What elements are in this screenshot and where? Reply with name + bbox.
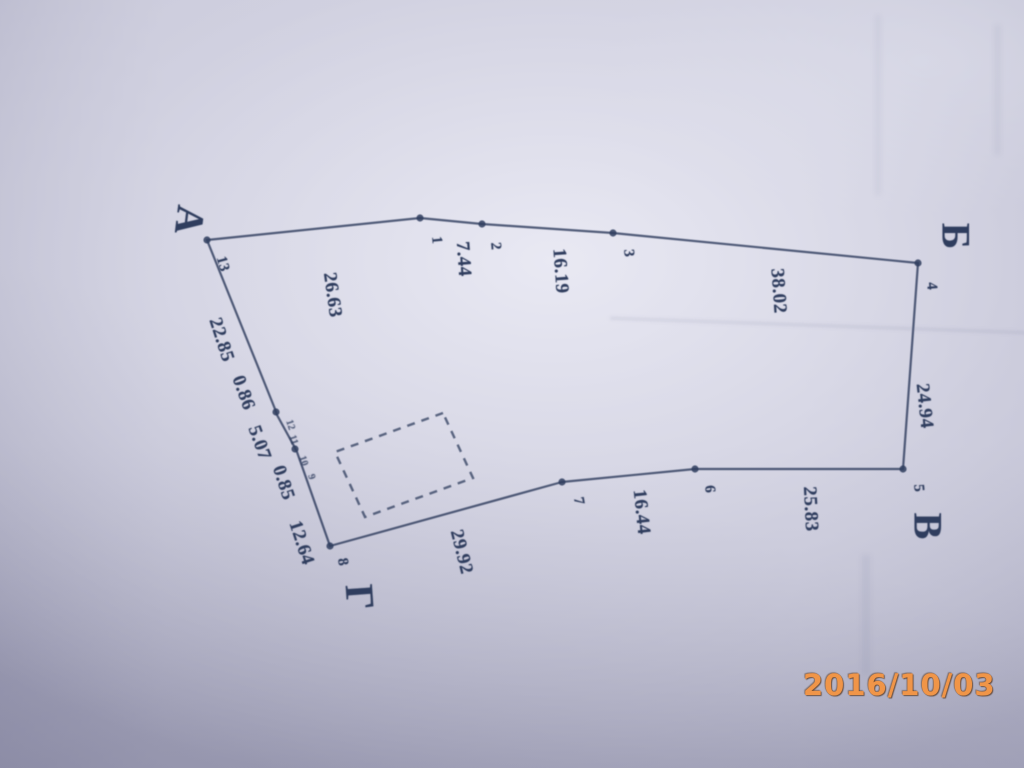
point-number-label: 11	[286, 434, 299, 446]
point-number-label: 7	[569, 496, 587, 506]
point-number-label: 13	[212, 255, 232, 274]
edge-length-label: 7.44	[451, 241, 475, 278]
paper-streak	[876, 15, 880, 195]
point-number-label: 1	[427, 236, 445, 245]
point-number-label: 8	[333, 557, 351, 567]
point-number-label: 4	[922, 282, 940, 291]
edge-length-label: 0.85	[267, 463, 299, 503]
edge-length-label: 38.02	[765, 268, 790, 315]
edge-length-label: 25.83	[798, 486, 822, 532]
paper-streak	[995, 25, 1000, 155]
edge-length-label: 29.92	[445, 527, 477, 576]
paper-streak	[862, 555, 870, 675]
point-number-label: 5	[909, 484, 927, 493]
point-number-label: 2	[486, 242, 504, 251]
edge-length-label: 5.07	[243, 423, 276, 464]
point-number-label: 6	[700, 485, 718, 494]
edge-length-label: 16.44	[628, 488, 655, 535]
edge-length-label: 16.19	[547, 248, 572, 295]
corner-letter: А	[165, 203, 215, 237]
point-number-label: 3	[619, 249, 637, 258]
plan-labels-layer: АБВГ1234567813121110926.637.4416.1938.02…	[0, 0, 1024, 768]
point-number-label: 10	[296, 455, 310, 468]
corner-letter: Г	[336, 583, 385, 612]
point-number-label: 12	[283, 419, 297, 432]
edge-length-label: 24.94	[911, 382, 938, 429]
camera-timestamp: 2016/10/03	[803, 668, 968, 702]
edge-length-label: 12.64	[284, 518, 319, 568]
corner-letter: В	[905, 513, 952, 540]
edge-length-label: 26.63	[318, 271, 346, 319]
edge-length-label: 0.86	[227, 373, 260, 414]
point-number-label: 9	[305, 473, 317, 481]
corner-letter: Б	[933, 223, 980, 249]
edge-length-label: 22.85	[204, 315, 239, 365]
photo-of-survey-plan: АБВГ1234567813121110926.637.4416.1938.02…	[0, 0, 1024, 768]
